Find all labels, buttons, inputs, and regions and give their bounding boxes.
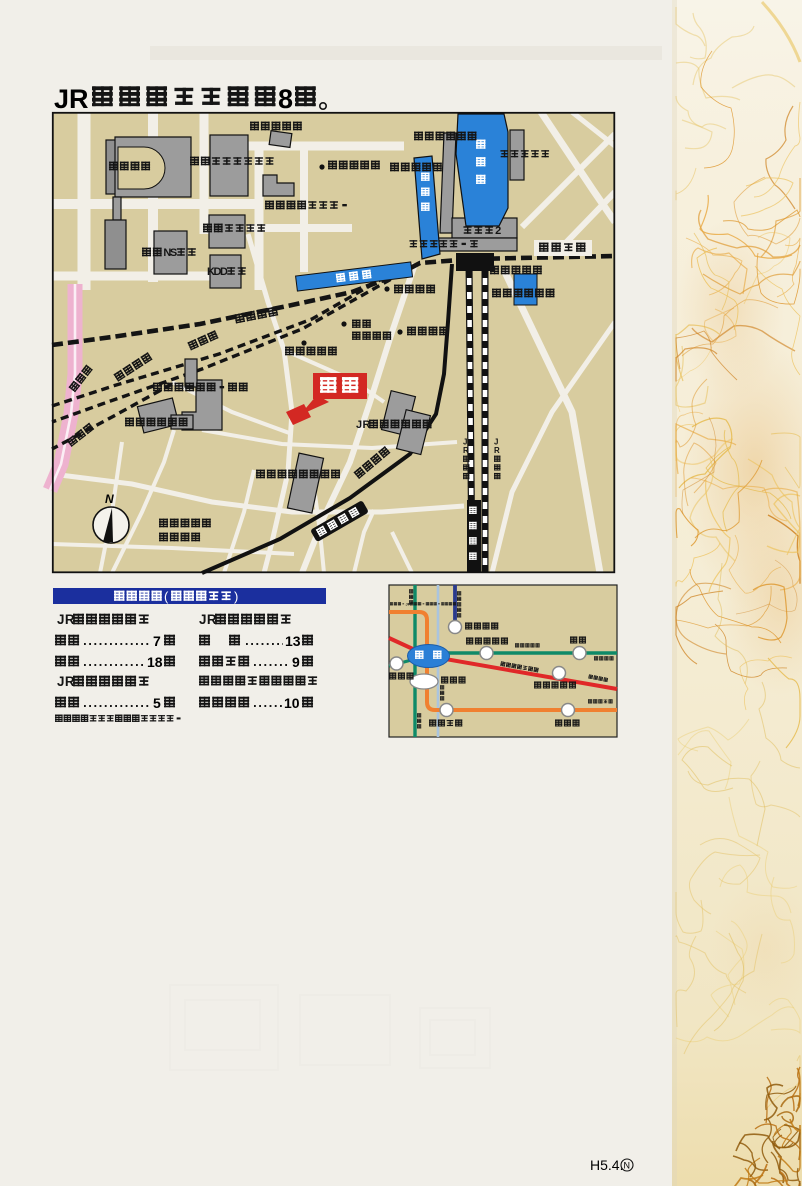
svg-text:J: J bbox=[463, 437, 467, 446]
svg-text:R: R bbox=[494, 446, 500, 455]
svg-text:): ) bbox=[234, 589, 238, 604]
svg-text:J: J bbox=[199, 612, 206, 627]
svg-text:J: J bbox=[57, 674, 64, 689]
svg-text:JR: JR bbox=[54, 84, 89, 114]
svg-text:N: N bbox=[624, 1161, 631, 1171]
svg-text:10: 10 bbox=[284, 695, 300, 711]
svg-text:7: 7 bbox=[153, 633, 161, 649]
svg-text:J: J bbox=[494, 437, 498, 446]
svg-text:8: 8 bbox=[278, 84, 293, 114]
svg-text:N: N bbox=[105, 492, 114, 506]
svg-text:J: J bbox=[356, 419, 362, 431]
svg-text:9: 9 bbox=[292, 654, 300, 670]
svg-text:J: J bbox=[57, 612, 64, 627]
svg-text:D: D bbox=[220, 266, 228, 278]
svg-text:S: S bbox=[170, 247, 177, 259]
svg-text:H5.4.: H5.4. bbox=[590, 1157, 623, 1173]
svg-text:18: 18 bbox=[147, 654, 163, 670]
svg-text:2: 2 bbox=[495, 225, 501, 237]
svg-text:5: 5 bbox=[153, 695, 161, 711]
svg-text:(: ( bbox=[164, 589, 169, 604]
svg-text:13: 13 bbox=[285, 633, 301, 649]
svg-text:R: R bbox=[463, 446, 469, 455]
